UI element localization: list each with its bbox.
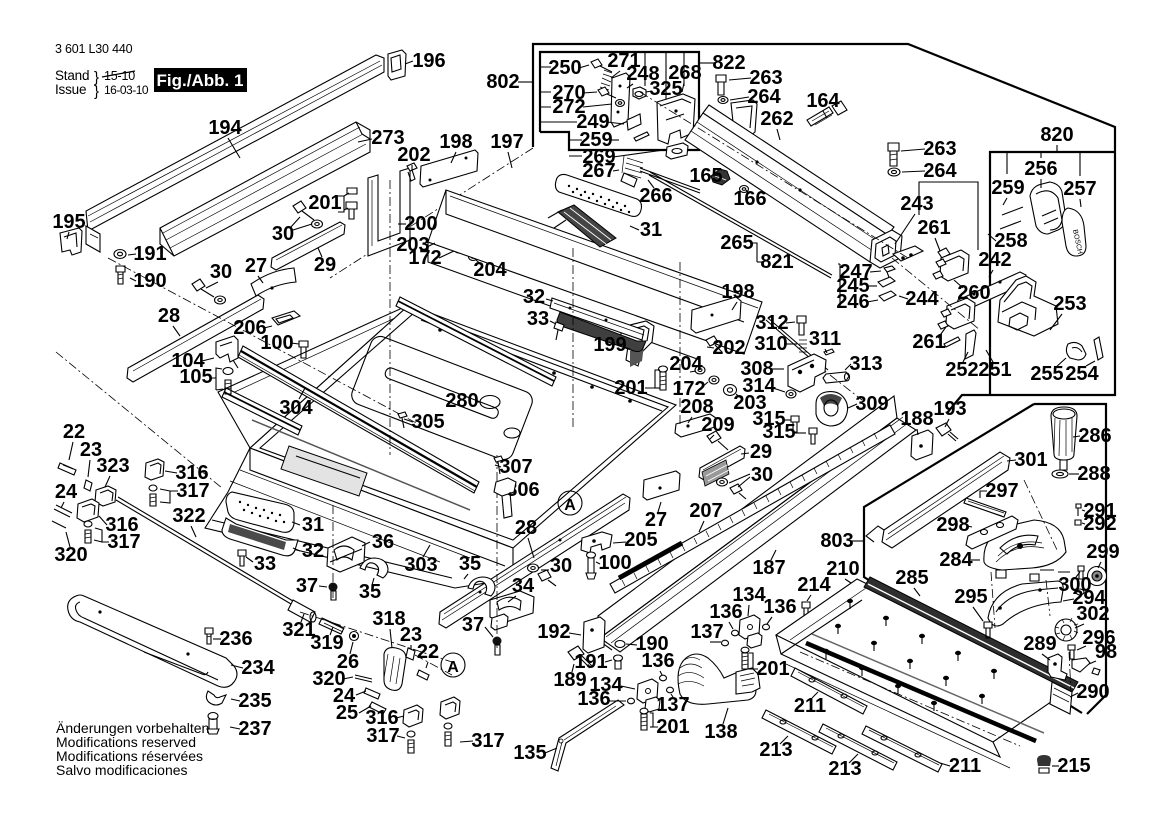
svg-text:27: 27: [645, 509, 667, 531]
svg-text:320: 320: [54, 544, 87, 566]
svg-text:266: 266: [639, 185, 672, 207]
svg-text:213: 213: [828, 758, 861, 780]
svg-text:100: 100: [598, 552, 631, 574]
svg-text:136: 136: [641, 650, 674, 672]
svg-text:262: 262: [760, 108, 793, 130]
svg-text:135: 135: [513, 742, 546, 764]
svg-text:822: 822: [712, 52, 745, 74]
svg-text:284: 284: [939, 549, 973, 571]
svg-text:803: 803: [820, 530, 853, 552]
svg-text:191: 191: [574, 651, 607, 673]
svg-text:254: 254: [1065, 363, 1099, 385]
svg-text:190: 190: [133, 270, 166, 292]
svg-text:290: 290: [1076, 681, 1109, 703]
svg-text:255: 255: [1030, 363, 1063, 385]
svg-text:317: 317: [471, 730, 504, 752]
svg-text:105: 105: [179, 366, 212, 388]
svg-text:259: 259: [991, 177, 1024, 199]
svg-text:205: 205: [624, 529, 657, 551]
svg-text:201: 201: [614, 377, 647, 399]
svg-text:302: 302: [1076, 603, 1109, 625]
svg-text:22: 22: [417, 641, 439, 663]
svg-text:28: 28: [515, 517, 537, 539]
svg-text:198: 198: [439, 131, 472, 153]
svg-text:295: 295: [954, 586, 987, 608]
svg-text:211: 211: [794, 695, 826, 717]
svg-text:317: 317: [366, 725, 399, 747]
svg-text:303: 303: [404, 554, 437, 576]
svg-text:297: 297: [985, 480, 1018, 502]
svg-text:322: 322: [172, 505, 205, 527]
svg-text:215: 215: [1057, 755, 1090, 777]
svg-text:305: 305: [411, 411, 444, 433]
svg-text:35: 35: [359, 581, 381, 603]
svg-text:201: 201: [756, 658, 789, 680]
svg-text:136: 136: [763, 596, 796, 618]
svg-text:30: 30: [272, 223, 294, 245]
svg-text:244: 244: [905, 288, 939, 310]
svg-text:Fig./Abb. 1: Fig./Abb. 1: [157, 71, 244, 90]
svg-text:29: 29: [750, 441, 772, 463]
svg-text:30: 30: [751, 464, 773, 486]
svg-text:311: 311: [809, 328, 841, 350]
svg-text:301: 301: [1014, 449, 1047, 471]
svg-text:187: 187: [752, 557, 785, 579]
svg-text:253: 253: [1053, 293, 1086, 315]
svg-text:197: 197: [490, 131, 523, 153]
svg-text:202: 202: [397, 144, 430, 166]
svg-text:802: 802: [486, 71, 519, 93]
svg-text:31: 31: [640, 219, 662, 241]
svg-text:235: 235: [238, 690, 271, 712]
svg-text:32: 32: [302, 540, 324, 562]
svg-text:31: 31: [302, 514, 324, 536]
svg-text:29: 29: [314, 254, 336, 276]
svg-text:264: 264: [747, 86, 781, 108]
svg-text:312: 312: [755, 312, 788, 334]
svg-text:201: 201: [656, 716, 689, 738]
svg-text:191: 191: [133, 243, 166, 265]
svg-text:286: 286: [1078, 425, 1111, 447]
svg-text:35: 35: [459, 553, 481, 575]
svg-text:315: 315: [762, 421, 795, 443]
svg-text:251: 251: [978, 359, 1011, 381]
svg-text:299: 299: [1086, 541, 1119, 563]
svg-text:27: 27: [245, 255, 267, 277]
svg-text:289: 289: [1023, 633, 1056, 655]
svg-text:263: 263: [923, 138, 956, 160]
svg-text:821: 821: [760, 251, 793, 273]
svg-text:264: 264: [923, 160, 957, 182]
svg-text:30: 30: [210, 261, 232, 283]
svg-text:210: 210: [826, 558, 859, 580]
svg-text:198: 198: [721, 281, 754, 303]
svg-text:164: 164: [806, 90, 840, 112]
svg-text:Issue: Issue: [55, 82, 86, 97]
svg-text:24: 24: [55, 481, 78, 503]
svg-text:820: 820: [1040, 124, 1073, 146]
svg-text:194: 194: [208, 117, 242, 139]
svg-text:138: 138: [704, 721, 737, 743]
svg-text:32: 32: [523, 286, 545, 308]
svg-text:193: 193: [933, 398, 966, 420]
svg-text:37: 37: [462, 614, 484, 636]
svg-text:34: 34: [512, 575, 535, 597]
svg-text:317: 317: [176, 480, 209, 502]
svg-text:209: 209: [701, 414, 734, 436]
svg-text:317: 317: [107, 531, 140, 553]
svg-text:100: 100: [260, 332, 293, 354]
svg-text:33: 33: [254, 553, 276, 575]
svg-text:136: 136: [709, 601, 742, 623]
svg-text:313: 313: [849, 353, 882, 375]
svg-text:33: 33: [527, 308, 549, 330]
svg-text:136: 136: [577, 688, 610, 710]
svg-text:Salvo modificaciones: Salvo modificaciones: [56, 762, 188, 778]
svg-text:A: A: [564, 497, 576, 514]
svg-text:137: 137: [656, 694, 689, 716]
svg-text:188: 188: [900, 408, 933, 430]
svg-text:234: 234: [241, 657, 275, 679]
svg-text:98: 98: [1095, 641, 1117, 663]
svg-text:288: 288: [1077, 463, 1110, 485]
svg-text:300: 300: [1058, 574, 1091, 596]
svg-text:252: 252: [945, 359, 978, 381]
svg-text:211: 211: [949, 755, 981, 777]
svg-text:243: 243: [900, 193, 933, 215]
svg-text:207: 207: [689, 500, 722, 522]
svg-text:201: 201: [308, 192, 341, 214]
svg-text:237: 237: [238, 718, 271, 740]
svg-text:260: 260: [957, 282, 990, 304]
svg-text:137: 137: [690, 621, 723, 643]
svg-text:298: 298: [936, 514, 969, 536]
svg-text:16-03-10: 16-03-10: [104, 83, 149, 97]
svg-text:A: A: [447, 659, 459, 676]
svg-text:304: 304: [279, 397, 313, 419]
svg-text:200: 200: [404, 213, 437, 235]
svg-text:166: 166: [733, 188, 766, 210]
svg-text:265: 265: [720, 232, 753, 254]
svg-text:325: 325: [649, 78, 682, 100]
svg-text:261: 261: [917, 217, 950, 239]
svg-text:309: 309: [855, 393, 888, 415]
svg-text:195: 195: [52, 211, 85, 233]
svg-text:36: 36: [372, 531, 394, 553]
svg-text:213: 213: [759, 739, 792, 761]
svg-text:280: 280: [445, 390, 478, 412]
svg-text:307: 307: [499, 456, 532, 478]
svg-text:242: 242: [978, 249, 1011, 271]
svg-text:196: 196: [412, 50, 445, 72]
svg-text:3 601 L30 440: 3 601 L30 440: [55, 42, 133, 56]
svg-text:192: 192: [537, 621, 570, 643]
svg-text:236: 236: [219, 628, 252, 650]
svg-text:172: 172: [408, 247, 441, 269]
svg-text:28: 28: [158, 305, 180, 327]
svg-text:310: 310: [754, 333, 787, 355]
svg-text:}: }: [94, 83, 99, 100]
svg-text:30: 30: [550, 555, 572, 577]
svg-text:256: 256: [1024, 158, 1057, 180]
svg-text:270: 270: [552, 82, 585, 104]
svg-text:257: 257: [1063, 178, 1096, 200]
svg-text:285: 285: [895, 567, 928, 589]
svg-text:37: 37: [296, 575, 318, 597]
svg-text:250: 250: [548, 57, 581, 79]
svg-text:292: 292: [1083, 513, 1116, 535]
svg-text:Stand: Stand: [55, 68, 89, 83]
svg-text:323: 323: [96, 455, 129, 477]
svg-text:204: 204: [669, 353, 703, 375]
svg-text:25: 25: [336, 702, 358, 724]
svg-text:199: 199: [593, 334, 626, 356]
svg-text:202: 202: [712, 337, 745, 359]
svg-text:246: 246: [836, 291, 869, 313]
